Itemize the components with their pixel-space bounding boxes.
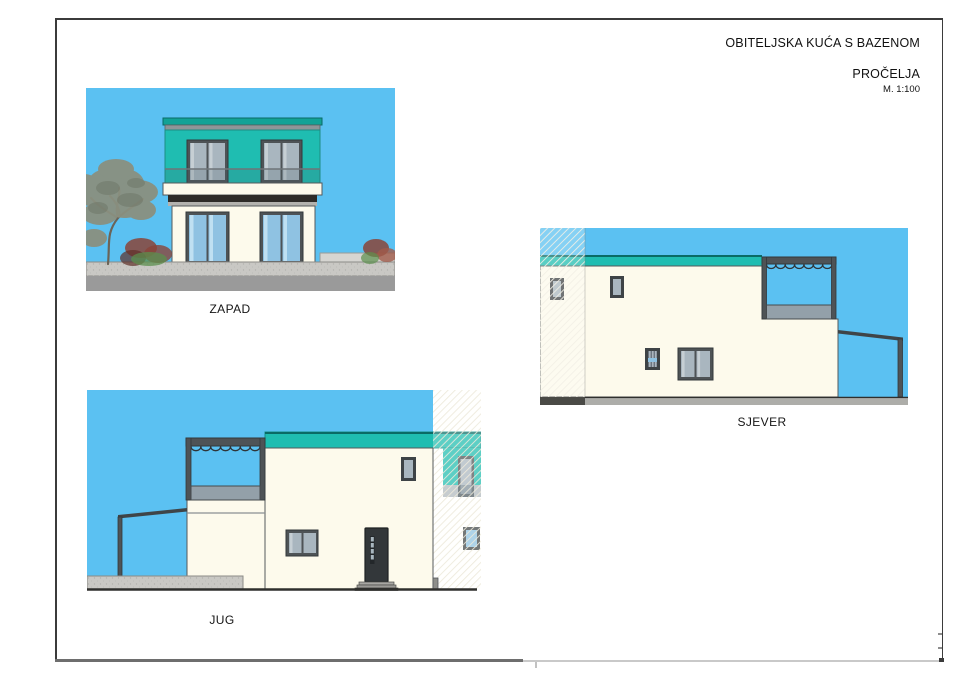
sjever-label: SJEVER — [687, 415, 837, 429]
jug-window-upper — [401, 457, 416, 481]
sjever-pergola-beam — [762, 257, 836, 264]
zapad-floor-slab — [163, 183, 322, 195]
sjever-pergola-post-left — [762, 257, 767, 319]
jug-elevation-drawing — [87, 390, 481, 592]
project-title: OBITELJSKA KUĆA S BAZENOM — [520, 36, 920, 50]
zapad-glass-balustrade — [165, 169, 320, 183]
zapad-awning-rail — [168, 202, 317, 206]
jug-entry-door — [365, 528, 388, 582]
sjever-ground-dark-segment — [540, 397, 585, 405]
sheet-border-tick-right-2 — [938, 647, 942, 649]
sjever-terrace-parapet — [767, 305, 832, 319]
zapad-ground-base — [86, 276, 395, 291]
zapad-awning — [168, 195, 317, 202]
sheet-title: PROČELJA — [520, 67, 920, 81]
zapad-label: ZAPAD — [155, 302, 305, 316]
sheet-border-bottom-dark-segment — [55, 659, 523, 662]
sheet-border-bottom-light-segment — [523, 660, 942, 662]
jug-pergola-post-left — [186, 438, 191, 500]
zapad-upper-floor — [163, 118, 322, 183]
zapad-roof-beam — [165, 125, 320, 130]
sjever-window-blinds — [645, 348, 660, 370]
title-block: OBITELJSKA KUĆA S BAZENOM PROČELJA M. 1:… — [520, 36, 920, 95]
sjever-window-double — [678, 348, 713, 380]
jug-pergola-post-right — [260, 438, 265, 500]
sheet-border-left — [55, 18, 57, 661]
sjever-ground-base — [540, 399, 908, 406]
sheet-scale: M. 1:100 — [520, 84, 920, 95]
zapad-roof-fascia — [163, 118, 322, 125]
drawing-sheet: OBITELJSKA KUĆA S BAZENOM PROČELJA M. 1:… — [0, 0, 960, 679]
sheet-border-tick-bottom — [535, 662, 537, 668]
sjever-elevation-drawing — [540, 228, 908, 405]
jug-ground-texture — [87, 576, 243, 590]
jug-hatch-pattern — [433, 390, 481, 589]
jug-canopy-post — [118, 517, 122, 578]
sjever-pergola-post-right — [832, 257, 837, 319]
jug-post-small — [433, 578, 438, 589]
sheet-border-top — [55, 18, 943, 20]
sjever-hatch-pattern — [540, 228, 585, 397]
zapad-lower-door-right — [260, 212, 303, 263]
zapad-elevation-drawing — [86, 88, 395, 291]
jug-pergola-beam — [186, 438, 265, 446]
zapad-lower-door-left — [186, 212, 229, 263]
sjever-window-upper-2 — [610, 276, 624, 298]
sheet-border-right — [942, 18, 944, 661]
zapad-lower-floor — [172, 206, 315, 263]
sheet-border-tick-right-1 — [938, 633, 942, 635]
jug-terrace-parapet — [191, 486, 260, 500]
sheet-border-corner-handle — [939, 658, 944, 663]
jug-label: JUG — [147, 613, 297, 627]
sjever-canopy-post — [898, 339, 903, 397]
jug-window-lower — [286, 530, 318, 556]
